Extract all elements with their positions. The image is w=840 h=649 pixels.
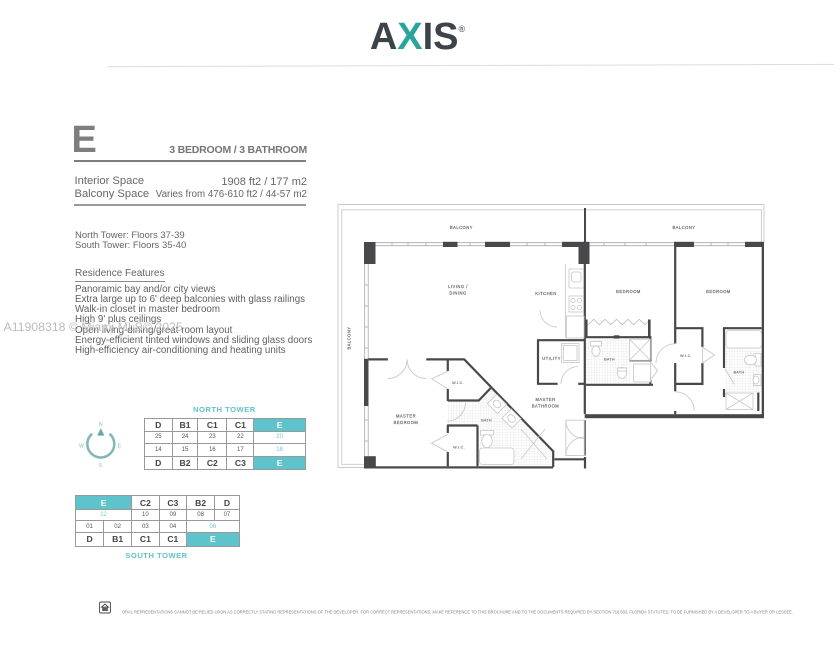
svg-text:S: S <box>99 463 103 469</box>
svg-text:DINING: DINING <box>449 290 466 295</box>
svg-text:BATHROOM: BATHROOM <box>532 403 559 408</box>
svg-text:MASTER: MASTER <box>535 397 555 402</box>
svg-text:LIVING /: LIVING / <box>448 284 468 289</box>
svg-text:BEDROOM: BEDROOM <box>706 289 731 294</box>
svg-text:BALCONY: BALCONY <box>347 326 352 349</box>
svg-text:BALCONY: BALCONY <box>672 225 695 230</box>
svg-text:UTILITY: UTILITY <box>542 356 561 361</box>
svg-text:W.I.C.: W.I.C. <box>453 446 465 450</box>
svg-text:W: W <box>79 444 84 450</box>
svg-text:BEDROOM: BEDROOM <box>394 420 419 425</box>
svg-text:BEDROOM: BEDROOM <box>616 289 641 294</box>
svg-text:W.I.C.: W.I.C. <box>452 381 464 385</box>
svg-text:KITCHEN: KITCHEN <box>535 291 556 296</box>
svg-text:BATH: BATH <box>481 419 492 423</box>
svg-text:BATH: BATH <box>604 358 615 362</box>
svg-text:BATH: BATH <box>734 371 745 375</box>
svg-text:W.I.C.: W.I.C. <box>680 354 692 358</box>
svg-text:N: N <box>99 422 103 428</box>
svg-text:ORAL REPRESENTATIONS CANNOT BE: ORAL REPRESENTATIONS CANNOT BE RELIED UP… <box>122 610 793 615</box>
svg-text:MASTER: MASTER <box>396 413 416 418</box>
svg-text:BALCONY: BALCONY <box>450 225 473 230</box>
svg-text:E: E <box>118 444 122 450</box>
